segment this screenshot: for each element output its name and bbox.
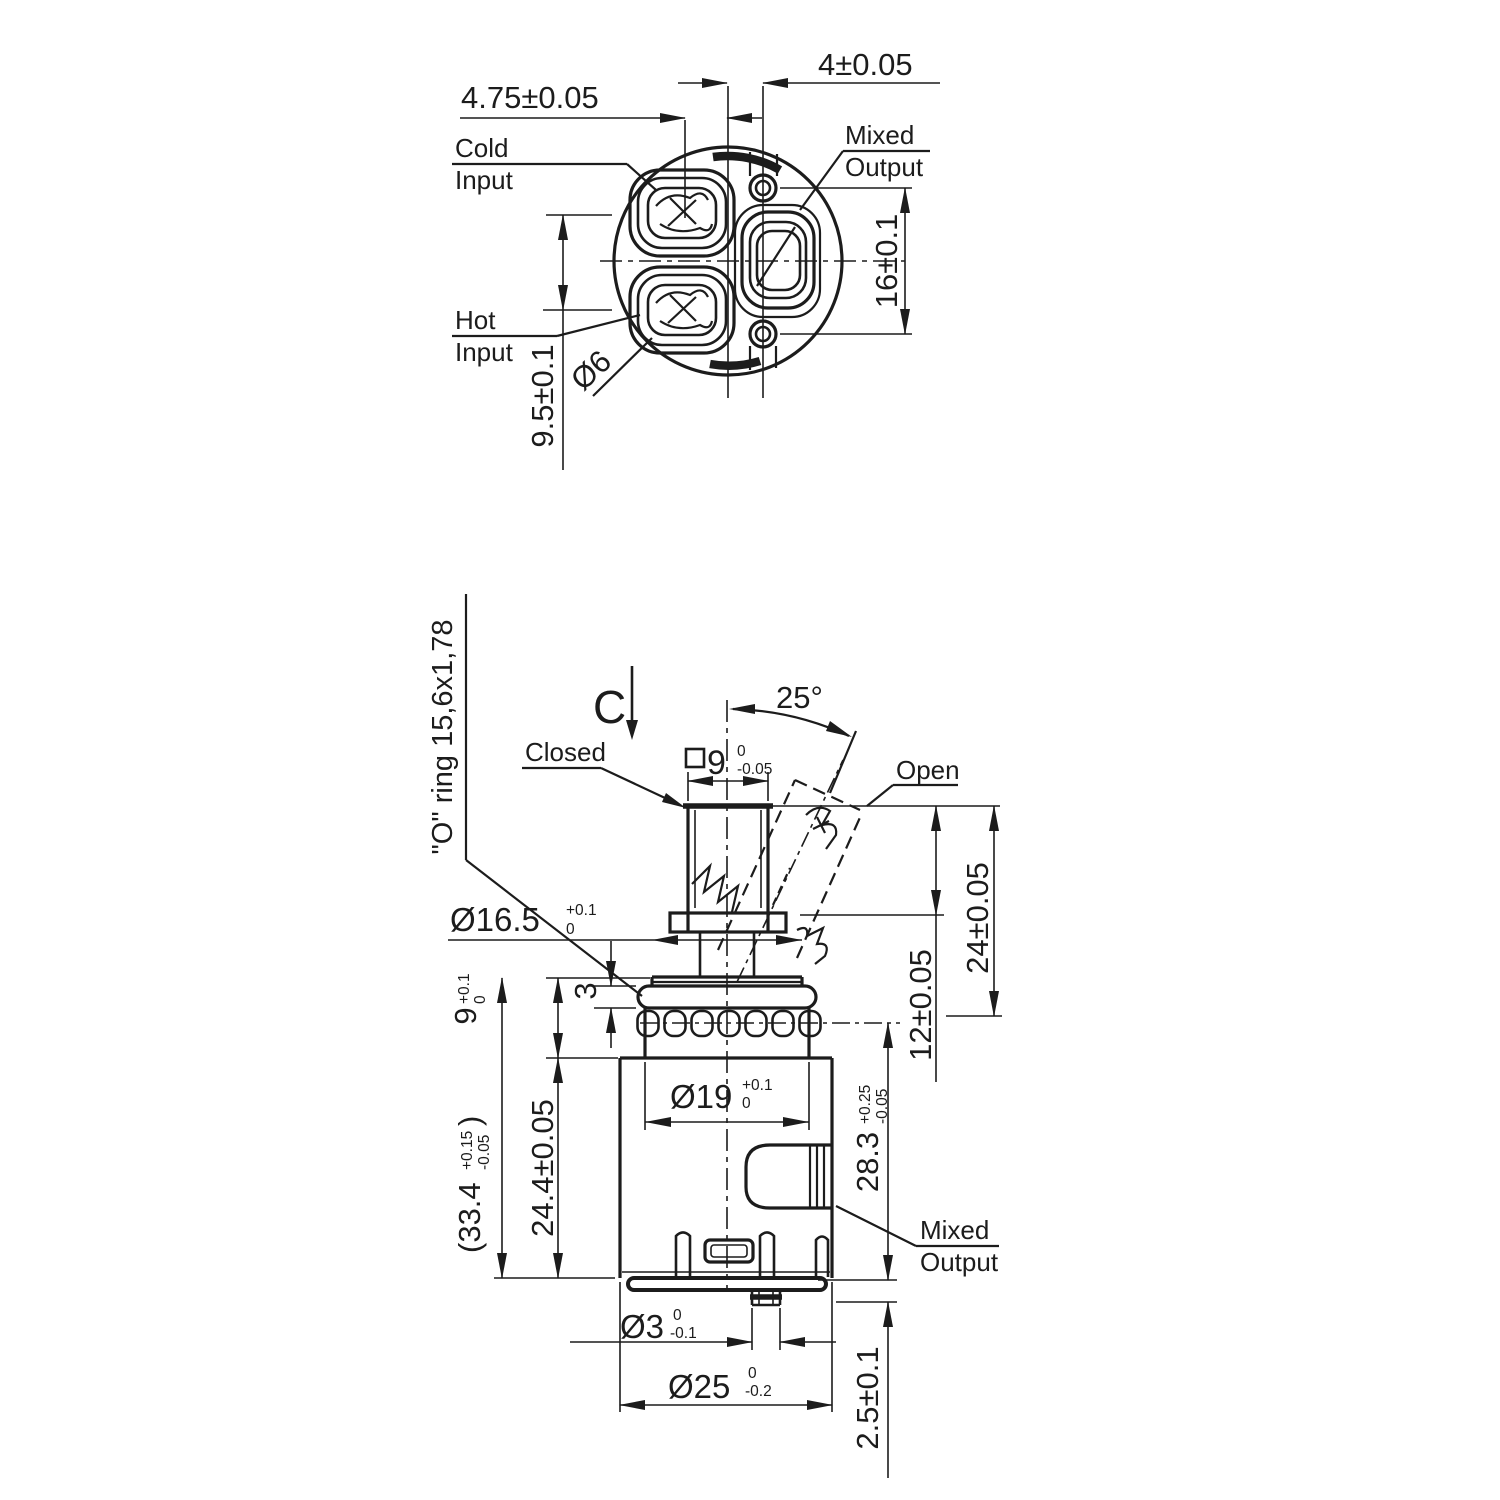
label-cold-input: Cold Input [452,133,656,195]
top-slot [713,156,780,170]
mixed-top-label-line1: Mixed [845,120,914,150]
open-label-text: Open [896,755,960,785]
mixed-top-label-line2: Output [845,152,924,182]
hot-label-line1: Hot [455,305,496,335]
dim-pin-dia: Ø3 0 -0.1 [570,1307,836,1350]
dim-base-dia-main: Ø25 [668,1368,730,1405]
mixed-side-label-line2: Output [920,1247,999,1277]
label-closed: Closed [522,737,686,808]
square-symbol [686,749,704,767]
technical-drawing: 4±0.05 4.75±0.05 16±0.1 9.5±0.1 Ø6 [0,0,1500,1500]
dim-neck-sup: +0.1 [566,902,597,919]
dim-neck-main: Ø16.5 [450,901,540,938]
drawing-page: 4±0.05 4.75±0.05 16±0.1 9.5±0.1 Ø6 [0,0,1500,1500]
dim-stem-square-sup: 0 [737,743,746,760]
dim-stem-square-main: 9 [707,744,726,782]
dim-total-sub: -0.05 [476,1135,493,1170]
dim-stem-square: 9 0 -0.05 [686,743,772,801]
dim-open-angle-text: 25° [776,680,823,715]
dim-stem-12-text: 12±0.05 [903,949,938,1061]
bottom-pin [750,1290,782,1305]
dim-offset-right: 4±0.05 [678,47,940,83]
dim-offset-right-text: 4±0.05 [818,47,913,82]
dim-outlet-main: 28.3 [850,1132,885,1192]
label-mixed-output-side: Mixed Output [836,1206,999,1277]
top-view: 4±0.05 4.75±0.05 16±0.1 9.5±0.1 Ø6 [452,47,940,470]
dim-top-band-sub: 0 [472,995,489,1004]
stem-closed [670,806,786,932]
label-open: Open [867,755,960,806]
oring-label-text: "O" ring 15,6x1,78 [427,619,459,854]
dim-port-spacing: 9.5±0.1 [525,215,612,470]
cold-label-line1: Cold [455,133,508,163]
hot-label-line2: Input [455,337,514,367]
dim-band-dia-sup: +0.1 [742,1077,773,1094]
cold-label-line2: Input [455,165,514,195]
dim-total-close: ) [452,1116,487,1126]
dim-pin-height: 2.5±0.1 [836,1302,897,1478]
dim-pin-height-text: 2.5±0.1 [850,1346,885,1449]
dim-offset-left-text: 4.75±0.05 [461,80,599,115]
dim-outlet-height: 28.3 +0.25 -0.05 [818,1023,897,1280]
label-mixed-output-top: Mixed Output [800,120,930,210]
dim-total-open: (33.4 [452,1182,487,1253]
closed-label-text: Closed [525,737,606,767]
dim-stem-24: 24±0.05 [946,806,1002,1016]
dim-body-height: 24.4±0.05 [525,1058,618,1278]
dim-collar: 3 [568,941,636,1048]
mixed-outlet-side [746,1145,832,1208]
dim-body-height-text: 24.4±0.05 [525,1099,560,1237]
dim-neck: Ø16.5 +0.1 0 [448,901,802,945]
dim-pin-dia-sub: -0.1 [670,1325,697,1342]
dim-base-dia-sub: -0.2 [745,1383,772,1400]
dim-offset-left: 4.75±0.05 [460,80,762,118]
stem-open-position [718,760,862,982]
dim-outlet-sup: +0.25 [857,1085,874,1124]
dim-collar-text: 3 [568,982,603,999]
dim-top-band-main: 9 [448,1007,483,1024]
dim-stem-24-text: 24±0.05 [960,862,995,974]
base-plate [628,1278,826,1290]
dim-pin-dia-main: Ø3 [620,1308,664,1345]
hot-inlet-port [630,267,734,353]
dim-neck-sub: 0 [566,921,575,938]
dim-base-dia: Ø25 0 -0.2 [620,1282,832,1412]
dim-port-spacing-text: 9.5±0.1 [525,344,560,447]
mixed-side-label-line1: Mixed [920,1215,989,1245]
cold-inlet-port [630,170,734,256]
bottom-slot [710,361,760,366]
section-mark: C [593,666,638,740]
dim-hole-dia: Ø6 [564,338,652,397]
dim-outlet-sub: -0.05 [874,1089,891,1124]
dim-screw-spacing-text: 16±0.1 [869,214,904,309]
inlet-band [638,1008,901,1058]
dim-hole-dia-text: Ø6 [564,343,618,397]
dim-band-dia-main: Ø19 [670,1078,732,1115]
dim-total-sup: +0.15 [459,1131,476,1170]
dim-base-dia-sup: 0 [748,1365,757,1382]
section-mark-text: C [593,681,626,733]
side-view: 25° C Closed Open 9 0 -0.05 [427,594,1002,1478]
dim-stem-square-sub: -0.05 [737,761,772,778]
dim-band-dia-sub: 0 [742,1095,751,1112]
dim-pin-dia-sup: 0 [673,1307,682,1324]
dim-top-band-sup: +0.1 [456,973,473,1004]
